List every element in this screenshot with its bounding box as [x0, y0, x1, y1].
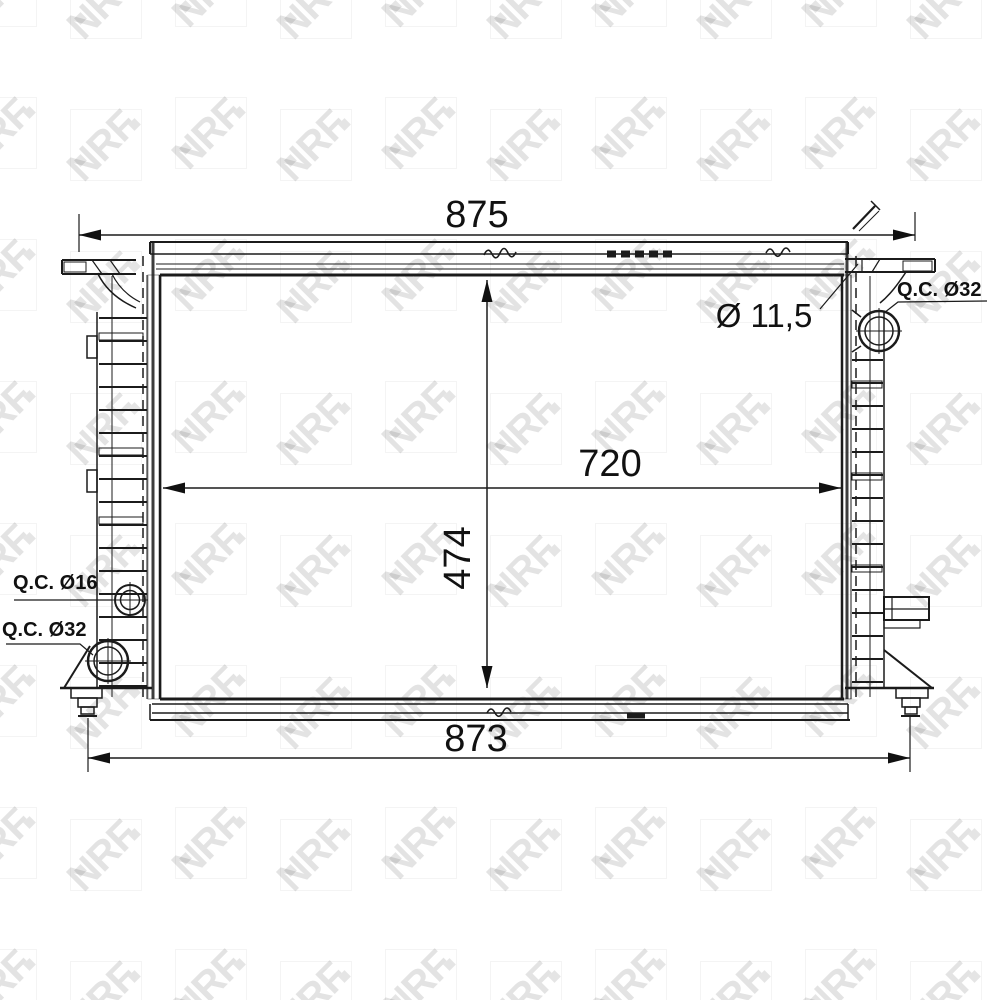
- right-stub: [884, 597, 929, 628]
- dimension-label-873: 873: [444, 718, 507, 760]
- annotation-port-left-lower: Q.C. Ø32: [2, 619, 93, 655]
- dimension-label-474: 474: [437, 526, 479, 589]
- dimension-label-720: 720: [578, 443, 641, 485]
- right-port-32: [852, 308, 902, 354]
- annotation-port-top-right: Q.C. Ø32: [884, 279, 987, 313]
- port-top-right-label: Q.C. Ø32: [897, 279, 981, 301]
- dimension-label-875: 875: [445, 194, 508, 236]
- top-tank: [150, 242, 848, 275]
- top-clip-wave-2: [766, 248, 790, 256]
- dimension-overall-width-top: 875: [79, 194, 915, 252]
- left-clip: [87, 336, 97, 358]
- left-port-32: [85, 638, 131, 684]
- left-upper-bracket: [62, 260, 140, 308]
- dimension-core-height: 474: [437, 280, 493, 688]
- bottom-tank: [150, 699, 850, 720]
- left-tank: [87, 276, 147, 697]
- dimension-overall-width-bottom: 873: [88, 716, 910, 772]
- bottom-clip-wave: [487, 708, 511, 716]
- top-mounting-pin: [853, 201, 880, 231]
- top-clip-wave: [484, 249, 516, 258]
- port-left-upper-label: Q.C. Ø16: [13, 572, 97, 594]
- left-tank-ribs: [99, 318, 147, 686]
- technical-drawing-canvas: NRFNRFNRFNRFNRFNRFNRFNRFNRFNRFNRFNRFNRFN…: [0, 0, 1000, 1000]
- port-left-lower-label: Q.C. Ø32: [2, 619, 86, 641]
- radiator-technical-drawing: 875 720 474 873 Ø 11,5: [0, 0, 1000, 1000]
- pin-hole-diameter-label: Ø 11,5: [716, 297, 813, 334]
- left-clip: [87, 470, 97, 492]
- dimension-core-width: 720: [163, 443, 841, 494]
